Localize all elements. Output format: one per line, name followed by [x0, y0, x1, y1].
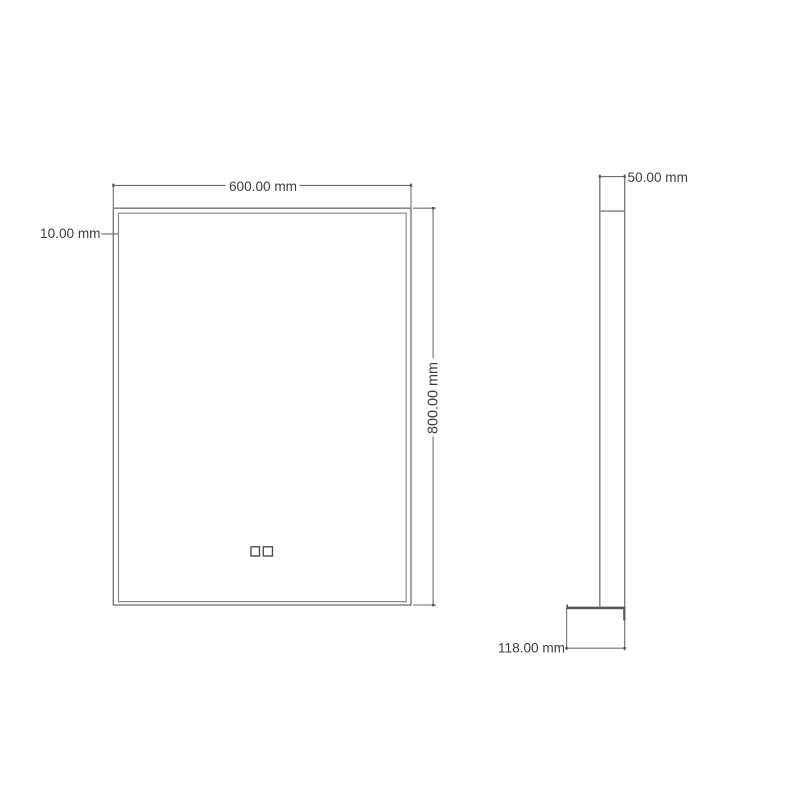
svg-text:10.00 mm: 10.00 mm — [40, 226, 100, 241]
svg-text:800.00 mm: 800.00 mm — [426, 362, 442, 434]
svg-text:118.00 mm: 118.00 mm — [498, 641, 565, 656]
svg-text:50.00 mm: 50.00 mm — [628, 170, 688, 185]
svg-text:600.00 mm: 600.00 mm — [229, 179, 297, 194]
